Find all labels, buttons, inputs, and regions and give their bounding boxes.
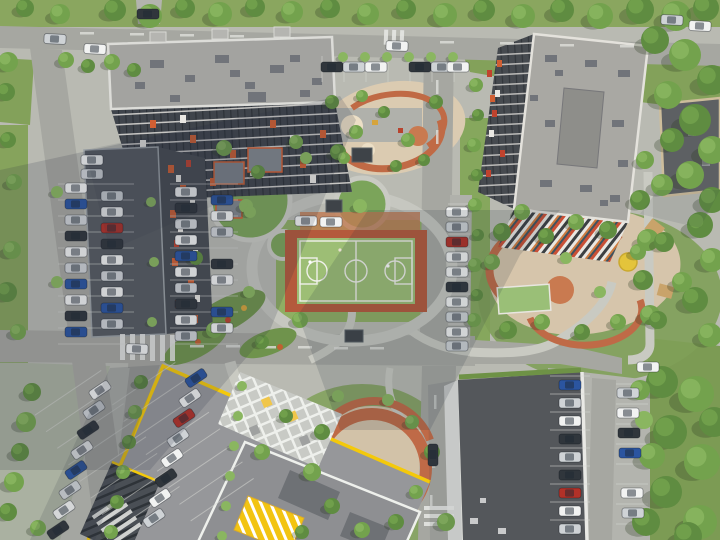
tree <box>610 314 626 330</box>
tree <box>649 311 667 329</box>
tree <box>676 161 704 189</box>
tree <box>208 2 232 26</box>
car <box>559 488 581 498</box>
tree <box>633 270 653 290</box>
tree <box>357 3 379 25</box>
tree <box>58 52 74 68</box>
car <box>321 62 343 72</box>
tree <box>390 160 402 172</box>
tree <box>0 132 16 148</box>
car <box>559 470 581 480</box>
tree <box>599 221 617 239</box>
tree <box>279 409 293 423</box>
tree <box>225 471 235 481</box>
car <box>320 217 342 227</box>
car <box>559 416 581 426</box>
tree <box>360 52 370 62</box>
car <box>689 20 711 31</box>
car <box>343 62 365 72</box>
tree <box>669 39 701 71</box>
car <box>619 448 641 458</box>
tree <box>472 109 484 121</box>
tree <box>574 324 590 340</box>
tree <box>314 424 330 440</box>
tree <box>104 525 118 539</box>
tree <box>104 54 120 70</box>
car <box>621 488 643 498</box>
car <box>84 43 106 54</box>
car <box>661 14 683 25</box>
car <box>622 508 644 518</box>
car <box>409 62 431 72</box>
roof-bulkhead-ne <box>557 88 604 168</box>
car <box>447 62 469 72</box>
tree <box>378 106 390 118</box>
tree <box>127 63 141 77</box>
tree <box>654 81 682 109</box>
tree <box>281 1 303 23</box>
car <box>559 380 581 390</box>
mini-court <box>497 284 551 314</box>
tree <box>473 0 495 21</box>
tree <box>426 52 436 62</box>
tree <box>356 90 368 102</box>
tree <box>467 138 481 152</box>
scene-svg <box>0 0 720 540</box>
tree <box>50 4 70 24</box>
tree <box>401 133 415 147</box>
car <box>137 9 159 19</box>
tree <box>338 52 348 62</box>
car <box>618 428 640 438</box>
tree <box>303 463 321 481</box>
aerial-render <box>0 0 720 540</box>
tree <box>468 198 482 212</box>
tree <box>679 104 711 136</box>
tree <box>684 444 720 480</box>
tree <box>353 199 367 213</box>
car <box>617 408 639 418</box>
tree <box>560 252 572 264</box>
tree <box>254 444 270 460</box>
tree <box>81 59 95 73</box>
tree <box>110 495 124 509</box>
car <box>559 524 581 534</box>
tree <box>429 95 443 109</box>
tree <box>672 272 692 292</box>
tree <box>388 514 404 530</box>
tree <box>221 501 231 511</box>
tree <box>641 26 669 54</box>
tree <box>654 232 674 252</box>
car <box>617 388 639 398</box>
tree <box>469 78 483 92</box>
tree <box>660 128 684 152</box>
tree <box>594 286 606 298</box>
tree <box>636 151 654 169</box>
car <box>559 506 581 516</box>
tree <box>324 498 340 514</box>
car <box>386 41 408 52</box>
tree <box>639 443 665 469</box>
car <box>559 452 581 462</box>
tree <box>653 415 687 449</box>
car <box>44 33 66 44</box>
tree <box>650 476 682 508</box>
tree <box>229 441 239 451</box>
tree <box>471 169 483 181</box>
tree <box>233 411 243 421</box>
tree <box>409 485 423 499</box>
tree <box>499 321 517 339</box>
car <box>365 62 387 72</box>
tree <box>630 244 646 260</box>
tree <box>404 52 414 62</box>
tree <box>511 4 535 28</box>
tree <box>678 376 714 412</box>
tree <box>382 52 392 62</box>
tree <box>295 525 309 539</box>
car <box>559 398 581 408</box>
tree <box>433 3 457 27</box>
tree <box>568 214 584 230</box>
tree <box>104 0 126 21</box>
tree <box>4 472 24 492</box>
car <box>559 434 581 444</box>
tree <box>418 154 430 166</box>
tree <box>534 314 550 330</box>
car <box>637 362 659 372</box>
roof-nw <box>108 37 335 109</box>
tree <box>587 3 613 29</box>
tree <box>237 381 247 391</box>
tree <box>448 52 458 62</box>
tree <box>354 522 370 538</box>
